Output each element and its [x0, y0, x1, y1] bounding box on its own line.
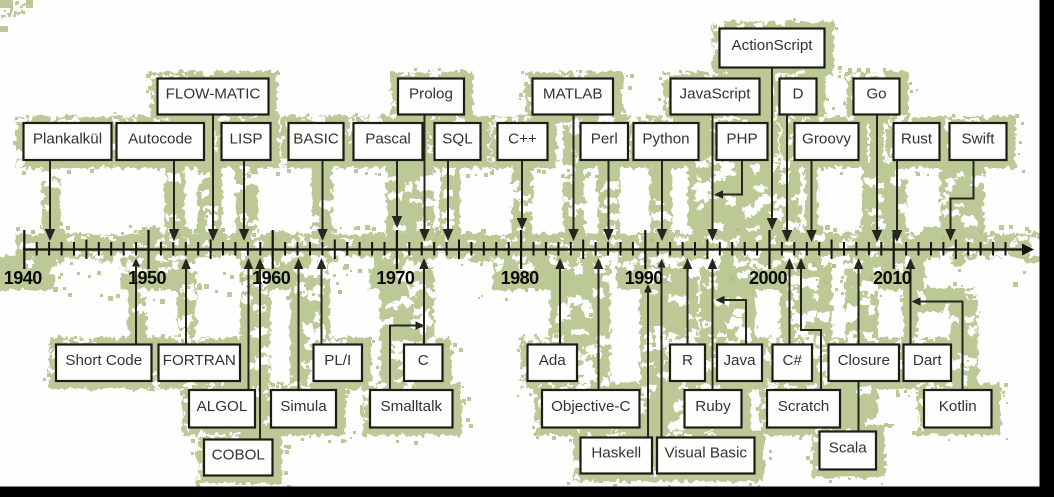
- svg-text:Scala: Scala: [829, 440, 868, 457]
- svg-text:COBOL: COBOL: [212, 447, 265, 464]
- svg-text:Autocode: Autocode: [128, 131, 192, 148]
- svg-text:Simula: Simula: [280, 398, 327, 415]
- svg-text:Ada: Ada: [539, 352, 567, 369]
- svg-text:C: C: [418, 352, 429, 369]
- svg-text:Dart: Dart: [913, 352, 942, 369]
- svg-text:1960: 1960: [252, 268, 291, 288]
- svg-text:Smalltalk: Smalltalk: [380, 398, 442, 415]
- svg-text:1940: 1940: [4, 268, 43, 288]
- svg-text:Closure: Closure: [838, 352, 890, 369]
- svg-text:1980: 1980: [501, 268, 540, 288]
- svg-text:C#: C#: [783, 352, 803, 369]
- svg-text:Python: Python: [642, 131, 689, 148]
- svg-text:1990: 1990: [625, 268, 664, 288]
- svg-text:Short Code: Short Code: [65, 352, 142, 369]
- svg-text:2010: 2010: [873, 268, 912, 288]
- svg-text:Scratch: Scratch: [778, 398, 830, 415]
- svg-text:Perl: Perl: [591, 131, 618, 148]
- svg-text:Haskell: Haskell: [591, 445, 641, 462]
- svg-text:ALGOL: ALGOL: [197, 398, 248, 415]
- svg-text:Plankalkül: Plankalkül: [33, 131, 102, 148]
- svg-text:LISP: LISP: [230, 131, 263, 148]
- svg-text:FLOW-MATIC: FLOW-MATIC: [166, 86, 261, 103]
- svg-text:D: D: [793, 86, 804, 103]
- svg-text:2000: 2000: [749, 268, 788, 288]
- svg-text:Groovy: Groovy: [802, 131, 851, 148]
- svg-text:Pascal: Pascal: [365, 131, 411, 148]
- svg-text:Rust: Rust: [901, 131, 933, 148]
- svg-text:1970: 1970: [376, 268, 415, 288]
- svg-text:Kotlin: Kotlin: [939, 398, 977, 415]
- svg-text:JavaScript: JavaScript: [680, 86, 752, 103]
- svg-text:FORTRAN: FORTRAN: [163, 352, 236, 369]
- svg-text:Go: Go: [866, 86, 886, 103]
- svg-text:Swift: Swift: [962, 131, 996, 148]
- svg-text:Ruby: Ruby: [695, 398, 731, 415]
- svg-text:PL/I: PL/I: [324, 352, 351, 369]
- svg-text:Java: Java: [723, 352, 756, 369]
- svg-text:ActionScript: ActionScript: [731, 37, 813, 54]
- svg-text:Objective-C: Objective-C: [551, 398, 630, 415]
- svg-text:Prolog: Prolog: [409, 86, 453, 103]
- svg-text:BASIC: BASIC: [293, 131, 339, 148]
- svg-text:PHP: PHP: [726, 131, 757, 148]
- svg-text:C++: C++: [508, 131, 537, 148]
- svg-text:SQL: SQL: [442, 131, 472, 148]
- svg-text:MATLAB: MATLAB: [543, 86, 603, 103]
- svg-text:R: R: [682, 352, 693, 369]
- svg-text:Visual Basic: Visual Basic: [665, 445, 748, 462]
- svg-text:1950: 1950: [128, 268, 167, 288]
